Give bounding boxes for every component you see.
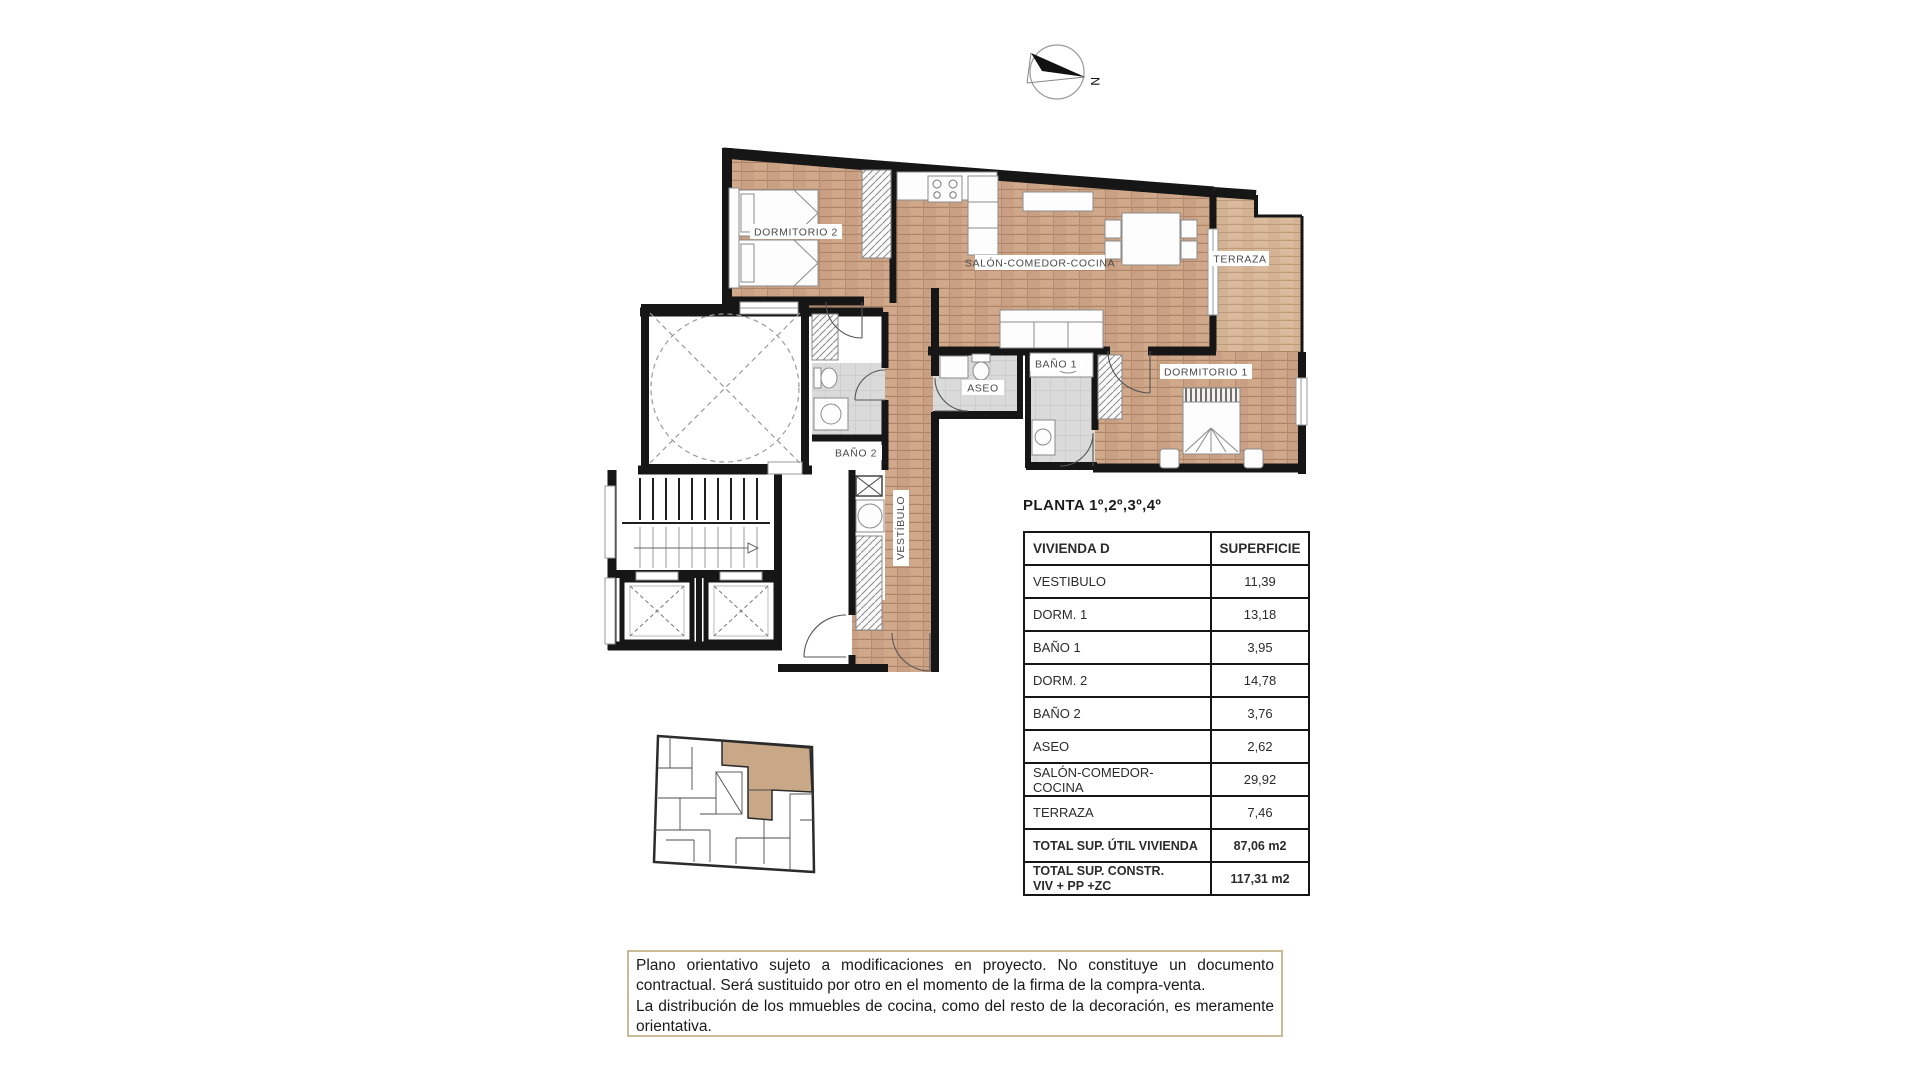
table-row: VESTIBULO 11,39 (1024, 565, 1309, 598)
elevator-2 (706, 572, 776, 642)
row-label: BAÑO 2 (1024, 697, 1211, 730)
total-constr-line1: TOTAL SUP. CONSTR. (1033, 864, 1202, 878)
surface-table: VIVIENDA D SUPERFICIE VESTIBULO 11,39 DO… (1023, 531, 1310, 896)
label-vestibulo: VESTÍBULO (894, 496, 907, 560)
table-row: DORM. 2 14,78 (1024, 664, 1309, 697)
label-dormitorio2: DORMITORIO 2 (754, 227, 838, 239)
row-value: 13,18 (1211, 598, 1309, 631)
label-salon: SALÓN-COMEDOR-COCINA (965, 257, 1115, 270)
vestibulo-wardrobe (856, 536, 882, 630)
table-row: SALÓN-COMEDOR-COCINA 29,92 (1024, 763, 1309, 796)
total-constr-line2: VIV + PP +ZC (1033, 879, 1202, 893)
total-util-label: TOTAL SUP. ÚTIL VIVIENDA (1024, 829, 1211, 862)
elevator-1 (622, 572, 692, 642)
total-util-value: 87,06 m2 (1211, 829, 1309, 862)
aseo-fixtures (940, 354, 990, 380)
row-value: 14,78 (1211, 664, 1309, 697)
total-util-row: TOTAL SUP. ÚTIL VIVIENDA 87,06 m2 (1024, 829, 1309, 862)
disclaimer-paragraph-2: La distribución de los mmuebles de cocin… (636, 997, 1274, 1038)
row-label: BAÑO 1 (1024, 631, 1211, 664)
table-row: BAÑO 1 3,95 (1024, 631, 1309, 664)
label-bano2: BAÑO 2 (835, 447, 877, 460)
disclaimer-paragraph-1: Plano orientativo sujeto a modificacione… (636, 956, 1274, 997)
row-value: 2,62 (1211, 730, 1309, 763)
row-label: DORM. 2 (1024, 664, 1211, 697)
sofa (1000, 310, 1103, 348)
table-row: DORM. 1 13,18 (1024, 598, 1309, 631)
compass-icon: N (1016, 30, 1106, 120)
label-terraza: TERRAZA (1213, 254, 1266, 266)
total-constr-value: 117,31 m2 (1211, 862, 1309, 895)
total-constr-label: TOTAL SUP. CONSTR. VIV + PP +ZC (1024, 862, 1211, 895)
landing-lobby (778, 470, 852, 668)
row-label: VESTIBULO (1024, 565, 1211, 598)
table-row: ASEO 2,62 (1024, 730, 1309, 763)
salon-sideboard (1023, 192, 1093, 211)
row-value: 3,95 (1211, 631, 1309, 664)
label-dormitorio1: DORMITORIO 1 (1164, 367, 1248, 379)
total-constr-row: TOTAL SUP. CONSTR. VIV + PP +ZC 117,31 m… (1024, 862, 1309, 895)
label-aseo: ASEO (967, 383, 999, 395)
floorplan-page: N (0, 0, 1920, 1080)
col-header-vivienda: VIVIENDA D (1024, 532, 1211, 565)
col-header-superficie: SUPERFICIE (1211, 532, 1309, 565)
row-label: DORM. 1 (1024, 598, 1211, 631)
label-bano1: BAÑO 1 (1035, 358, 1077, 371)
row-value: 29,92 (1211, 763, 1309, 796)
planta-title: PLANTA 1º,2º,3º,4º (1023, 497, 1161, 514)
row-value: 3,76 (1211, 697, 1309, 730)
compass-north-label: N (1088, 77, 1102, 86)
table-row: BAÑO 2 3,76 (1024, 697, 1309, 730)
stove-icon (928, 176, 962, 202)
table-header-row: VIVIENDA D SUPERFICIE (1024, 532, 1309, 565)
vestibulo-appliances (856, 476, 884, 630)
dorm2-wardrobe (862, 170, 891, 258)
row-value: 7,46 (1211, 796, 1309, 829)
row-value: 11,39 (1211, 565, 1309, 598)
table-row: TERRAZA 7,46 (1024, 796, 1309, 829)
row-label: SALÓN-COMEDOR-COCINA (1024, 763, 1211, 796)
key-plan (640, 720, 830, 885)
row-label: ASEO (1024, 730, 1211, 763)
patio-shaft (645, 308, 805, 468)
row-label: TERRAZA (1024, 796, 1211, 829)
compass-needle (1031, 53, 1085, 77)
bano2-closet (812, 314, 838, 360)
disclaimer-box: Plano orientativo sujeto a modificacione… (627, 950, 1283, 1037)
